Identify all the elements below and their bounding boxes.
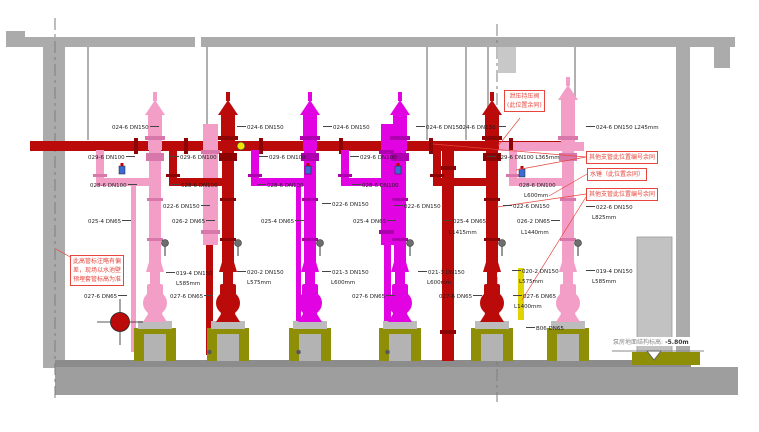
beam-joint-gap <box>195 36 201 48</box>
top-beam <box>25 37 735 47</box>
pump-units <box>93 77 589 361</box>
floor-edge <box>55 360 691 367</box>
right-column <box>676 47 690 366</box>
floor-slab <box>55 367 738 395</box>
left-column <box>43 47 65 368</box>
right-end-stub <box>714 47 730 68</box>
pump-unit-3 <box>248 92 331 361</box>
equipment-cabinet <box>637 237 672 355</box>
header-sensor-dot <box>237 142 245 150</box>
pump-unit-4 <box>338 92 421 361</box>
top-left-block <box>6 31 25 47</box>
grid-centerlines <box>55 18 497 402</box>
piping-elevation-drawing: 024-6 DN150029-6 DN100028-6 DN100025-4 D… <box>0 0 759 432</box>
building-structure <box>6 31 738 395</box>
right-curb <box>632 352 700 365</box>
grid-beam-stub <box>498 47 516 73</box>
drawing-canvas <box>0 0 759 432</box>
